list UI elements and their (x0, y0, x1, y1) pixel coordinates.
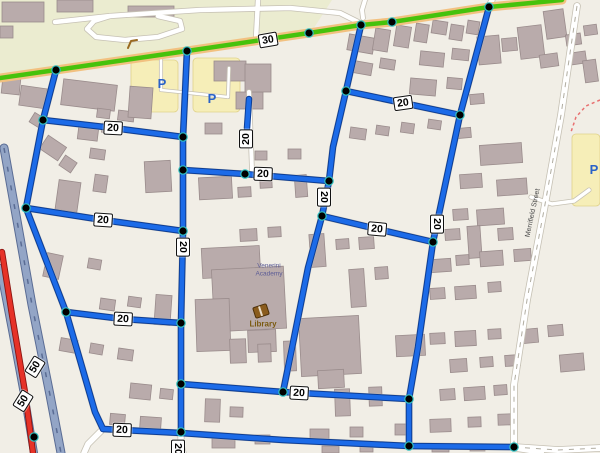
building (480, 250, 504, 267)
building (488, 282, 502, 293)
route-node[interactable] (456, 111, 464, 119)
route-node[interactable] (429, 238, 437, 246)
building (447, 77, 463, 89)
building (488, 329, 502, 340)
route-node[interactable] (22, 204, 30, 212)
building (372, 28, 390, 52)
building (195, 298, 231, 351)
building (110, 413, 126, 425)
building (299, 315, 362, 376)
building (359, 236, 375, 249)
building (160, 388, 174, 399)
building (476, 208, 504, 226)
building (55, 180, 81, 213)
building (240, 229, 258, 242)
building (449, 24, 464, 41)
building (460, 173, 483, 189)
building (543, 9, 567, 40)
building (230, 407, 243, 417)
building (583, 24, 597, 36)
building (548, 324, 564, 336)
building (268, 227, 282, 238)
route-node[interactable] (177, 319, 185, 327)
building (87, 258, 102, 270)
building (393, 25, 411, 48)
route-node[interactable] (177, 428, 185, 436)
building (450, 358, 468, 372)
building (517, 25, 545, 60)
route-node[interactable] (357, 21, 365, 29)
building (230, 339, 247, 364)
route-node[interactable] (325, 177, 333, 185)
building (430, 419, 451, 433)
building (419, 51, 444, 67)
route-node[interactable] (485, 3, 493, 11)
building (379, 58, 395, 70)
route-node[interactable] (183, 47, 191, 55)
building (97, 108, 111, 119)
street (228, 68, 229, 97)
map-viewport[interactable]: 30202020202020202020202020205050Merrifie… (0, 0, 600, 453)
building (559, 353, 584, 372)
route-node[interactable] (405, 395, 413, 403)
building (430, 287, 446, 299)
route-node[interactable] (39, 116, 47, 124)
building (430, 333, 446, 345)
building (514, 248, 532, 261)
route-node[interactable] (342, 87, 350, 95)
building (456, 255, 470, 266)
building (245, 64, 271, 92)
building (453, 208, 469, 220)
building (144, 160, 172, 192)
route-node[interactable] (279, 388, 287, 396)
route-node[interactable] (177, 380, 185, 388)
building (205, 123, 222, 134)
route-node[interactable] (241, 170, 249, 178)
building (99, 298, 115, 311)
building (445, 228, 461, 240)
building (375, 125, 389, 136)
building (2, 2, 44, 22)
building (480, 357, 494, 368)
street (256, 0, 258, 38)
building (322, 446, 339, 453)
building (89, 343, 104, 355)
building (288, 149, 301, 159)
building (129, 383, 151, 400)
building (479, 143, 522, 166)
building (451, 48, 469, 61)
building (260, 179, 272, 189)
building (93, 174, 108, 193)
map-canvas (0, 0, 600, 453)
building (117, 348, 133, 361)
route-node[interactable] (305, 29, 313, 37)
building (494, 385, 508, 396)
building (583, 59, 599, 83)
building (349, 127, 366, 140)
route-segment[interactable] (247, 99, 249, 128)
route-node[interactable] (179, 227, 187, 235)
building (205, 399, 221, 423)
building (498, 227, 514, 240)
building (0, 26, 13, 38)
building (539, 53, 559, 68)
building (127, 296, 141, 308)
building (466, 20, 480, 35)
building (258, 344, 272, 362)
building (427, 119, 441, 130)
building (198, 176, 232, 200)
building (455, 330, 477, 346)
building (255, 151, 267, 160)
building (470, 93, 485, 104)
building (400, 122, 414, 134)
building (496, 178, 527, 196)
route-node[interactable] (30, 433, 38, 441)
building (409, 78, 436, 96)
building (468, 417, 481, 427)
building (440, 388, 456, 400)
building (336, 239, 350, 250)
route-node[interactable] (388, 18, 396, 26)
route-node[interactable] (510, 443, 518, 451)
building (414, 23, 430, 43)
building (464, 386, 486, 400)
route-node[interactable] (405, 442, 413, 450)
building (238, 187, 252, 198)
route-node[interactable] (179, 166, 187, 174)
building (455, 285, 477, 299)
building (501, 37, 517, 51)
building (350, 427, 363, 437)
route-node[interactable] (62, 308, 70, 316)
building (375, 267, 389, 280)
route-node[interactable] (52, 66, 60, 74)
building (89, 148, 105, 160)
building (431, 20, 448, 35)
route-node[interactable] (318, 212, 326, 220)
building (349, 269, 367, 308)
building (128, 86, 153, 119)
route-node[interactable] (179, 133, 187, 141)
building (318, 369, 345, 388)
building (19, 85, 48, 108)
building (57, 0, 93, 12)
